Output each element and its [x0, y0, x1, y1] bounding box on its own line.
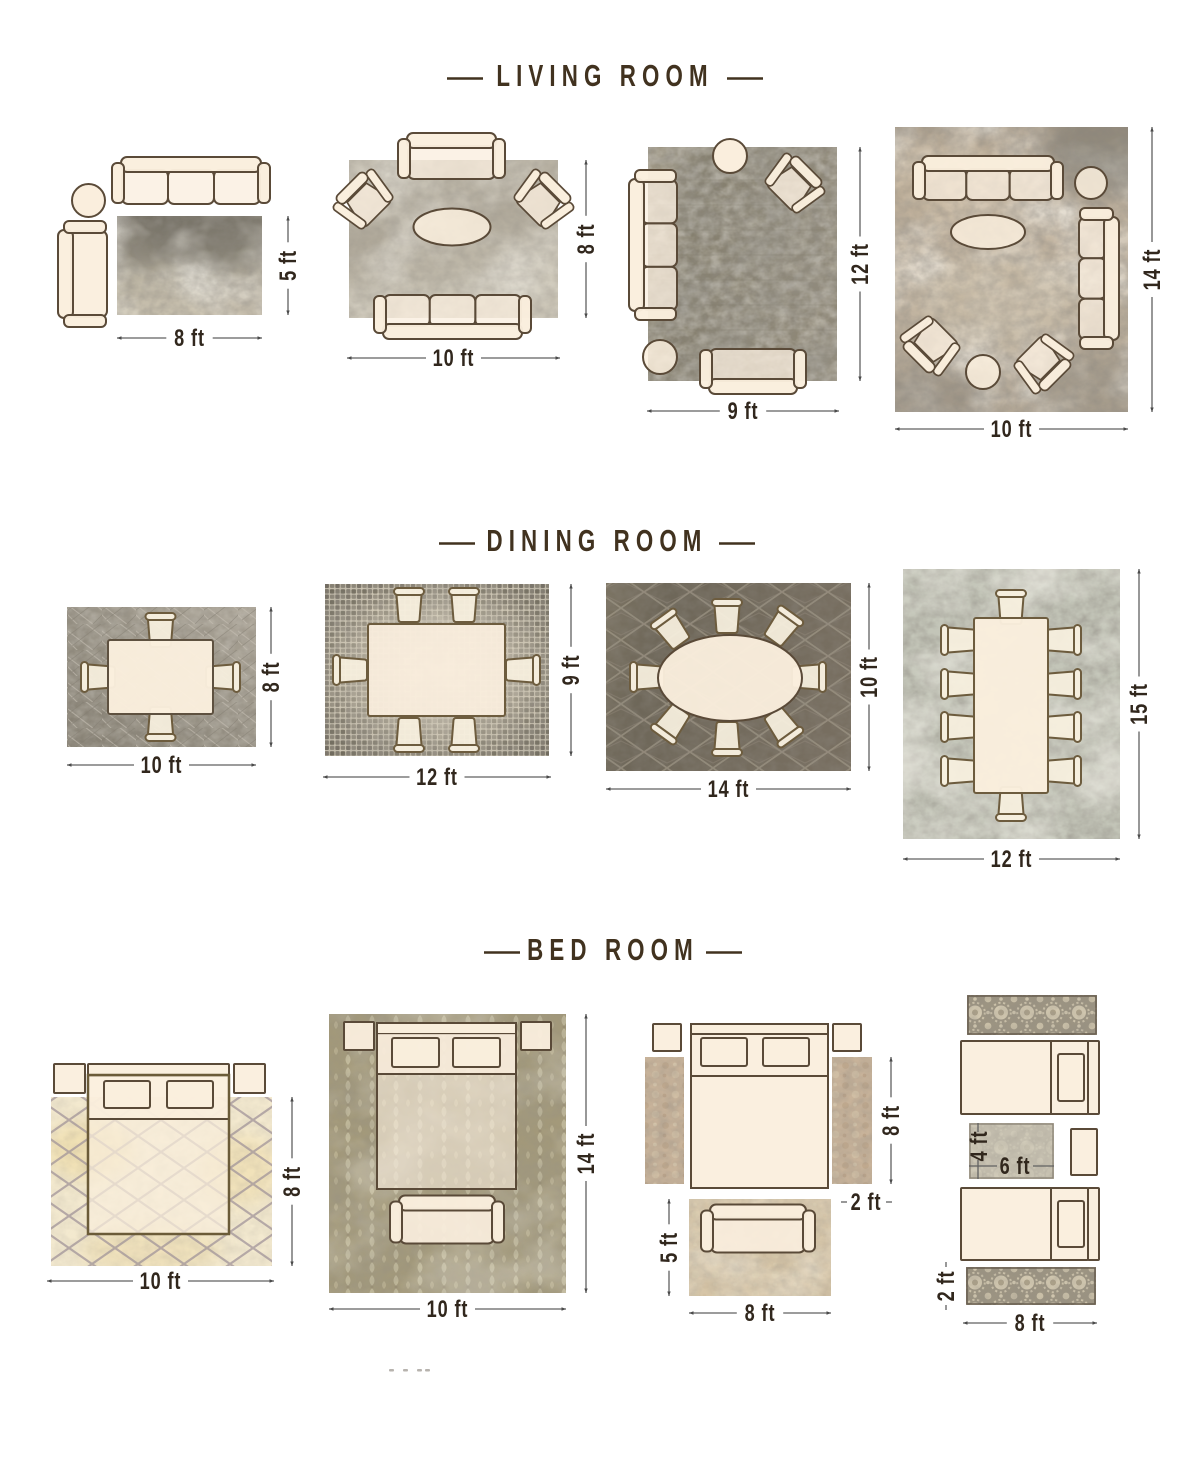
svg-text:9 ft: 9 ft: [556, 655, 584, 686]
svg-text:LIVING ROOM: LIVING ROOM: [496, 58, 713, 92]
svg-text:8 ft: 8 ft: [256, 662, 284, 693]
svg-text:BED ROOM: BED ROOM: [527, 932, 699, 966]
svg-text:12 ft: 12 ft: [991, 844, 1033, 872]
svg-text:10 ft: 10 ft: [433, 343, 475, 371]
svg-text:8 ft: 8 ft: [174, 323, 205, 351]
svg-text:12 ft: 12 ft: [416, 762, 458, 790]
svg-text:6 ft: 6 ft: [1000, 1151, 1031, 1179]
svg-text:8 ft: 8 ft: [571, 224, 599, 255]
svg-text:14 ft: 14 ft: [571, 1133, 599, 1175]
svg-text:10 ft: 10 ft: [854, 656, 882, 698]
svg-text:12 ft: 12 ft: [845, 243, 873, 285]
svg-text:10 ft: 10 ft: [427, 1294, 469, 1322]
svg-text:2 ft: 2 ft: [851, 1187, 882, 1215]
svg-text:DINING ROOM: DINING ROOM: [486, 523, 707, 557]
svg-text:8 ft: 8 ft: [745, 1298, 776, 1326]
svg-text:10 ft: 10 ft: [140, 1266, 182, 1294]
svg-text:8 ft: 8 ft: [876, 1105, 904, 1136]
svg-text:14 ft: 14 ft: [708, 774, 750, 802]
svg-text:15 ft: 15 ft: [1124, 683, 1152, 725]
svg-text:10 ft: 10 ft: [991, 414, 1033, 442]
svg-text:4 ft: 4 ft: [964, 1131, 992, 1162]
svg-text:9 ft: 9 ft: [728, 396, 759, 424]
svg-text:5 ft: 5 ft: [273, 250, 301, 281]
svg-text:8 ft: 8 ft: [1015, 1308, 1046, 1336]
svg-text:14 ft: 14 ft: [1137, 249, 1165, 291]
svg-text:8 ft: 8 ft: [277, 1166, 305, 1197]
svg-text:5 ft: 5 ft: [654, 1232, 682, 1263]
svg-text:10 ft: 10 ft: [141, 750, 183, 778]
svg-text:2 ft: 2 ft: [931, 1271, 959, 1302]
